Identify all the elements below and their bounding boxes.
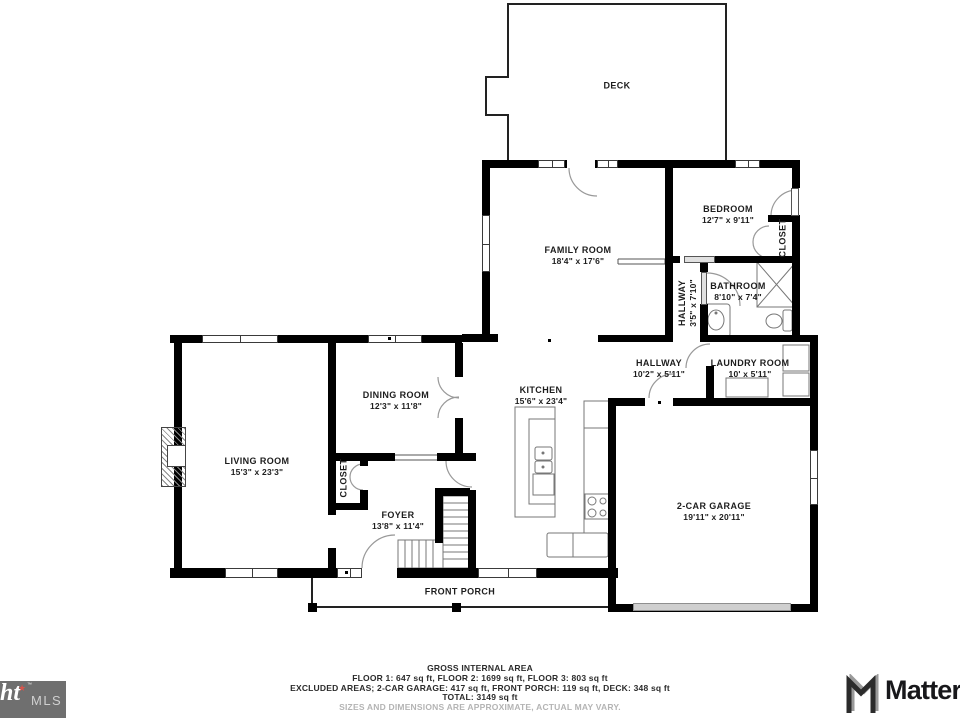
room-name: 2-CAR GARAGE [677,501,751,512]
room-label-front-porch: FRONT PORCH [425,587,495,598]
room-dims: 19'11" x 20'11" [677,512,751,523]
room-label-bedroom: BEDROOM 12'7" x 9'11" [702,204,754,226]
wall [702,335,818,342]
dimension-tick [345,571,348,574]
matterport-wordmark: Matterport [885,675,960,706]
foyer-closet-door-arc [350,464,363,490]
wall [792,160,800,188]
room-label-living: LIVING ROOM 15'3" x 23'3" [225,456,290,478]
french-door-bottom-arc [438,397,459,418]
wall [328,548,336,568]
wall [608,398,616,612]
stair-railing [618,259,665,264]
room-name: CLOSET [339,459,350,498]
room-name: DINING ROOM [363,390,429,401]
dimension-tick [548,339,551,342]
deck-door-arc [569,168,597,196]
room-dims: 12'3" x 11'8" [363,401,429,412]
bathroom-door-leaf [701,272,707,305]
dimension-tick [658,401,661,404]
room-name: KITCHEN [515,385,568,396]
dimension-tick [610,455,613,458]
room-name: BATHROOM [710,281,766,292]
window [202,335,278,343]
wall [360,461,368,466]
bedroom-exterior-door-leaf [791,188,799,216]
area-summary-disclaimer: SIZES AND DIMENSIONS ARE APPROXIMATE, AC… [0,703,960,713]
toilet-icon [766,310,792,331]
wall [810,335,818,406]
dimension-tick [772,162,775,165]
room-name: HALLWAY [677,279,688,327]
wall [595,160,800,168]
room-label-deck: DECK [603,81,630,92]
wall [462,334,498,342]
room-label-family-room: FAMILY ROOM 18'4" x 17'6" [545,245,612,267]
wall [468,453,476,459]
room-name: LAUNDRY ROOM [711,358,790,369]
stove-icon [585,494,610,519]
room-name: CLOSET [778,219,789,258]
kitchen-counter [547,401,610,557]
kitchen-island [515,407,555,517]
room-name: FRONT PORCH [425,587,495,598]
room-label-bedroom-closet: CLOSET [778,219,789,258]
window [597,160,618,168]
wall [328,343,336,515]
room-dims: 13'8" x 11'4" [372,521,424,532]
matterport-m-icon [843,674,883,714]
window [538,160,565,168]
room-dims: 3'5" x 7'10" [688,279,699,327]
french-door-top-arc [438,377,459,398]
window [482,215,490,272]
room-label-foyer: FOYER 13'8" x 11'4" [372,510,424,532]
room-dims: 10'2" x 5'11" [633,369,685,380]
window [368,335,422,343]
room-label-hallway-upper: HALLWAY 3'5" x 7'10" [677,279,699,327]
dimension-tick [388,337,391,340]
room-label-bathroom: BATHROOM 8'10" x 7'4" [710,281,766,303]
room-name: DECK [603,81,630,92]
wall [672,256,680,263]
wall [455,343,463,377]
room-dims: 15'6" x 23'4" [515,396,568,407]
wall [665,160,673,263]
porch-post [308,603,317,612]
foyer-kitchen-door-arc [446,461,472,487]
room-label-dining: DINING ROOM 12'3" x 11'8" [363,390,429,412]
wall [435,488,443,543]
bedroom-door-leaf [684,256,715,263]
wall [665,263,673,342]
fireplace-firebox [167,445,186,467]
wall [673,398,818,406]
bedroom-closet-door-arc [753,226,769,258]
room-label-foyer-closet: CLOSET [339,459,350,498]
mls-logo-word: ht [0,681,20,707]
wall [700,263,708,272]
mls-logo: ht ★ ™ MLS [0,681,66,718]
room-label-laundry: LAUNDRY ROOM 10' x 5'11" [711,358,790,380]
dining-foyer-opening [395,455,437,460]
garage-door [633,603,791,611]
matterport-logo: Matterport [843,674,883,714]
staircase [398,496,470,568]
window [225,568,278,578]
room-dims: 10' x 5'11" [711,369,790,380]
porch-post [452,603,461,612]
wall [328,503,368,510]
window [735,160,760,168]
floor-plan-page: DECK FAMILY ROOM 18'4" x 17'6" BEDROOM 1… [0,0,960,720]
dimension-tick [303,338,306,341]
wall [792,216,800,342]
area-summary: GROSS INTERNAL AREA FLOOR 1: 647 sq ft, … [0,664,960,713]
wall [810,398,818,612]
room-dims: 18'4" x 17'6" [545,256,612,267]
mls-logo-label: MLS [31,693,62,708]
mls-trademark: ™ [27,682,32,688]
room-dims: 8'10" x 7'4" [710,292,766,303]
room-label-hallway: HALLWAY 10'2" x 5'11" [633,358,685,380]
front-door-arc [362,535,395,568]
dimension-tick [460,571,463,574]
room-name: FAMILY ROOM [545,245,612,256]
window [337,568,362,578]
wall [455,418,463,453]
room-label-garage: 2-CAR GARAGE 19'11" x 20'11" [677,501,751,523]
mls-star-icon: ★ [18,683,26,694]
laundry-door-arc [686,344,710,368]
window [478,568,537,578]
room-dims: 15'3" x 23'3" [225,467,290,478]
wall [468,490,476,570]
room-label-kitchen: KITCHEN 15'6" x 23'4" [515,385,568,407]
room-dims: 12'7" x 9'11" [702,215,754,226]
room-name: FOYER [372,510,424,521]
room-name: BEDROOM [702,204,754,215]
window [810,450,818,505]
wall [598,335,673,342]
room-name: LIVING ROOM [225,456,290,467]
room-name: HALLWAY [633,358,685,369]
